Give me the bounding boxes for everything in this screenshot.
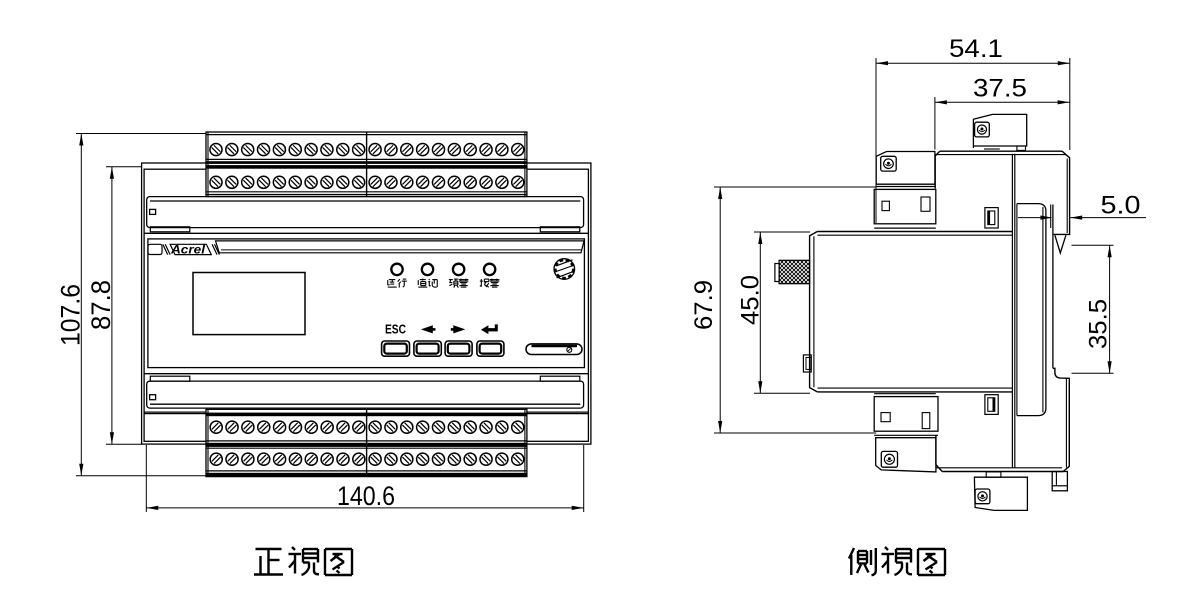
svg-text:5.0: 5.0 [1101,192,1141,220]
svg-text:35.5: 35.5 [1085,299,1113,349]
svg-text:87.8: 87.8 [86,280,116,330]
svg-text:37.5: 37.5 [973,75,1027,103]
svg-text:54.1: 54.1 [949,35,1003,63]
svg-text:Acrel: Acrel [170,244,206,256]
svg-text:107.6: 107.6 [56,284,86,346]
svg-text:67.9: 67.9 [690,280,718,330]
svg-text:ESC: ESC [385,322,406,336]
svg-text:140.6: 140.6 [337,481,395,511]
svg-text:45.0: 45.0 [737,275,765,325]
